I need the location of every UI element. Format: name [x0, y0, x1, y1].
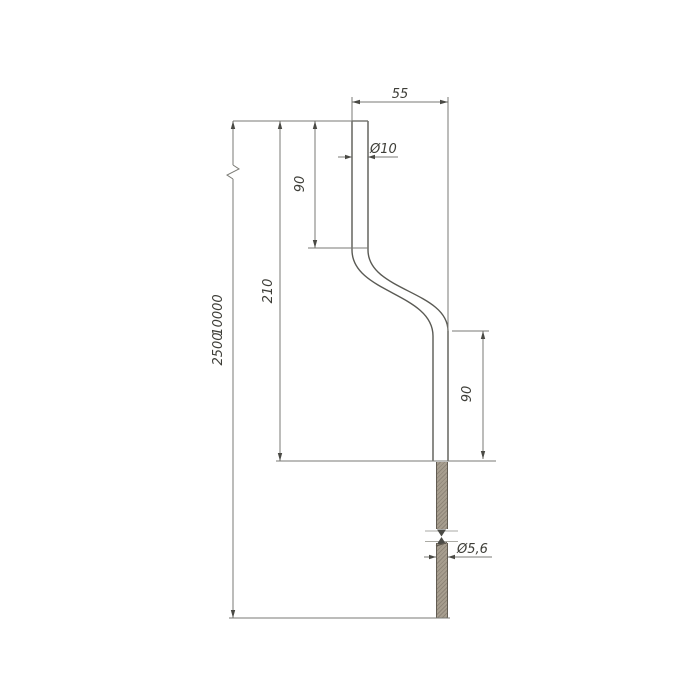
dim-label-90-upper: 90 — [293, 176, 308, 193]
arrow-total-top — [231, 121, 235, 129]
rod-break-symbol — [425, 530, 458, 547]
arrow-55-right — [440, 100, 448, 104]
arrow-dia56-right — [448, 555, 455, 559]
arrow-total-bottom — [231, 610, 235, 618]
rod-right-edge — [368, 121, 448, 461]
arrow-dia10-left — [345, 155, 352, 159]
arrow-210-bottom — [278, 453, 282, 461]
break-zigzag — [227, 165, 239, 179]
dim-label-10000: 10000 — [211, 294, 226, 335]
dim-label-dia10: Ø10 — [369, 142, 397, 157]
dim-label-90-lower: 90 — [460, 386, 475, 403]
arrow-55-left — [352, 100, 360, 104]
dim-label-55: 55 — [392, 87, 409, 102]
dim-label-210: 210 — [261, 279, 276, 304]
arrow-90l-bottom — [481, 451, 485, 459]
arrow-90u-bottom — [313, 240, 317, 248]
arrow-90l-top — [481, 331, 485, 339]
arrow-210-top — [278, 121, 282, 129]
arrow-dia56-left — [429, 555, 436, 559]
dim-label-2500: 2500 — [211, 332, 226, 365]
drawing-canvas: 55 Ø10 90 210 2500 10000 90 Ø5,6 — [0, 0, 700, 700]
break-arrow-down — [437, 530, 446, 537]
dimension-lines — [227, 97, 496, 618]
dim-label-dia56: Ø5,6 — [456, 542, 488, 557]
rod-outline — [352, 121, 448, 461]
rod-left-edge — [352, 121, 433, 461]
technical-drawing: 55 Ø10 90 210 2500 10000 90 Ø5,6 — [0, 0, 700, 700]
arrow-90u-top — [313, 121, 317, 129]
arrowheads — [231, 100, 485, 618]
